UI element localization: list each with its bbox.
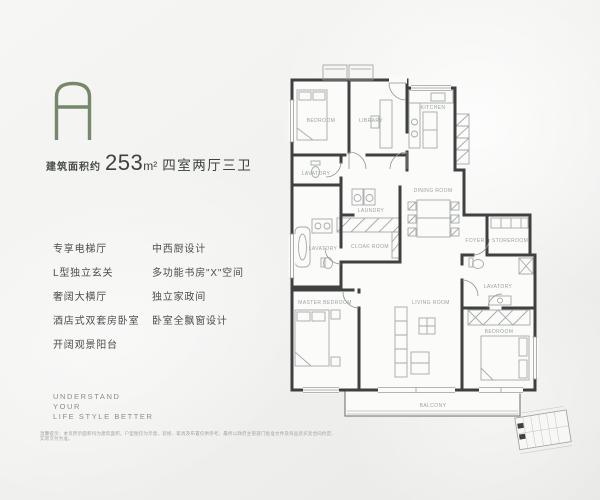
slogan-line: YOUR: [53, 402, 154, 412]
feature-column-1: 专享电梯厅 L型独立玄关 奢阔大横厅 酒店式双套房卧室 开阔观景阳台: [53, 238, 139, 358]
feature-column-2: 中西厨设计 多功能书房"X"空间 独立家政间 卧室全飘窗设计: [152, 238, 244, 334]
feature-item: 奢阔大横厅: [53, 286, 139, 310]
area-value: 253: [105, 150, 143, 175]
slogan-line: UNDERSTAND: [53, 392, 154, 402]
headline: 建筑面积约253m²四室两厅三卫: [46, 150, 286, 176]
slogan: UNDERSTAND YOUR LIFE STYLE BETTER: [53, 392, 154, 422]
floor-plan-drawing: BEDROOM LIBRARY KITCHEN DINING ROOM LAVA…: [283, 52, 545, 425]
feature-item: 专享电梯厅: [53, 238, 139, 262]
room-label-dining-room: DINING ROOM: [414, 188, 453, 194]
feature-item: 多功能书房"X"空间: [152, 262, 244, 286]
unit-letter-a-logo: [53, 80, 93, 147]
feature-item: 开阔观景阳台: [53, 334, 139, 358]
feature-item: 卧室全飘窗设计: [152, 310, 244, 334]
feature-item: 独立家政间: [152, 286, 244, 310]
room-label-lavatory: LAVATORY: [309, 246, 338, 252]
room-label-cloak-room: CLOAK ROOM: [351, 244, 389, 250]
feature-item: L型独立玄关: [53, 262, 139, 286]
room-label-living-room: LIVING ROOM: [412, 300, 450, 306]
floor-plan: BEDROOM LIBRARY KITCHEN DINING ROOM LAVA…: [283, 52, 545, 430]
room-label-kitchen: KITCHEN: [421, 105, 446, 111]
room-label-lavatory: LAVATORY: [484, 284, 513, 290]
room-label-foyer: FOYER: [465, 238, 484, 244]
room-label-bedroom: BEDROOM: [485, 329, 514, 335]
building-key-plan: [505, 400, 580, 467]
room-label-storeroom: STOREROOM: [492, 238, 528, 244]
feature-item: 中西厨设计: [152, 238, 244, 262]
building-key-plan-icon: [505, 400, 580, 462]
layout-type: 四室两厅三卫: [162, 158, 252, 173]
area-label: 建筑面积约: [46, 162, 101, 173]
poster-page: 建筑面积约253m²四室两厅三卫 专享电梯厅 L型独立玄关 奢阔大横厅 酒店式双…: [0, 0, 600, 500]
room-label-master-bedroom: MASTER BEDROOM: [298, 300, 352, 306]
feature-item: 酒店式双套房卧室: [53, 310, 139, 334]
unit-letter-a-icon: [53, 80, 93, 142]
disclaimer-fine-print: 温馨提示：本页所示面积均为建筑面积，户型图仅为示意，装修、家具及布置仅供参考，最…: [40, 431, 340, 441]
room-label-laundry: LAUNDRY: [358, 208, 385, 214]
slogan-line: LIFE STYLE BETTER: [53, 412, 154, 422]
room-label-library: LIBRARY: [359, 118, 383, 124]
room-label-balcony: BALCONY: [420, 403, 447, 409]
room-label-lavatory: LAVATORY: [302, 171, 331, 177]
area-unit: m²: [143, 159, 157, 173]
room-label-bedroom: BEDROOM: [307, 118, 336, 124]
